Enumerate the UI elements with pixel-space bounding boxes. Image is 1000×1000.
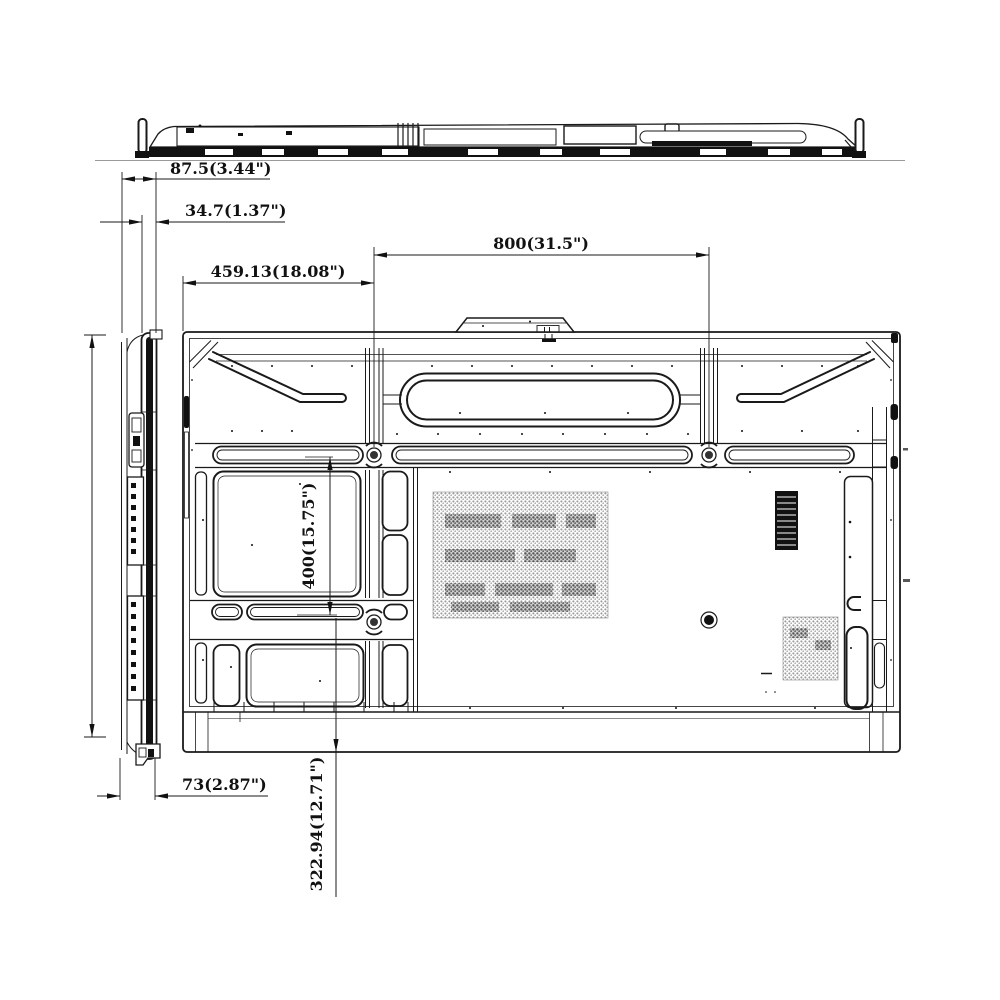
right-bracket-pin (856, 119, 864, 153)
technical-drawing: 87.5(3.44") 34.7(1.37") 800(31.5") 459.1… (0, 0, 1000, 1000)
louver-vent (775, 491, 798, 550)
top-view (95, 119, 905, 161)
dimension-label-vesa-to-bottom: 322.94(12.71") (307, 757, 326, 892)
right-bracket-foot (852, 151, 866, 158)
side-view (122, 330, 163, 765)
dimension-label-panel-depth: 34.7(1.37") (185, 201, 286, 220)
dimension-mount-depth: 73(2.87") (97, 758, 268, 800)
drawing-svg: 87.5(3.44") 34.7(1.37") 800(31.5") 459.1… (0, 0, 1000, 1000)
dimension-label-edge-to-vesa: 459.13(18.08") (211, 262, 346, 281)
main-vent (433, 492, 608, 618)
rear-view (183, 318, 910, 752)
top-bottom-strip (149, 147, 857, 157)
dimension-label-overall-depth: 87.5(3.44") (170, 159, 271, 178)
side-connector-block-a (129, 413, 144, 467)
small-vent (783, 617, 838, 680)
side-connector-block-c (128, 596, 144, 700)
dimension-label-vesa-horizontal: 800(31.5") (493, 234, 589, 253)
dimension-label-vesa-vertical: 400(15.75") (299, 483, 318, 590)
left-bracket-pin (139, 119, 147, 153)
side-connector-block-b (128, 477, 144, 565)
dimension-edge-to-vesa: 459.13(18.08") (183, 262, 374, 331)
dimension-height-bracket (84, 335, 106, 737)
dimension-label-mount-depth: 73(2.87") (182, 775, 267, 794)
dimension-overall-depth: 87.5(3.44") (122, 159, 271, 333)
left-bracket-foot (135, 151, 149, 158)
